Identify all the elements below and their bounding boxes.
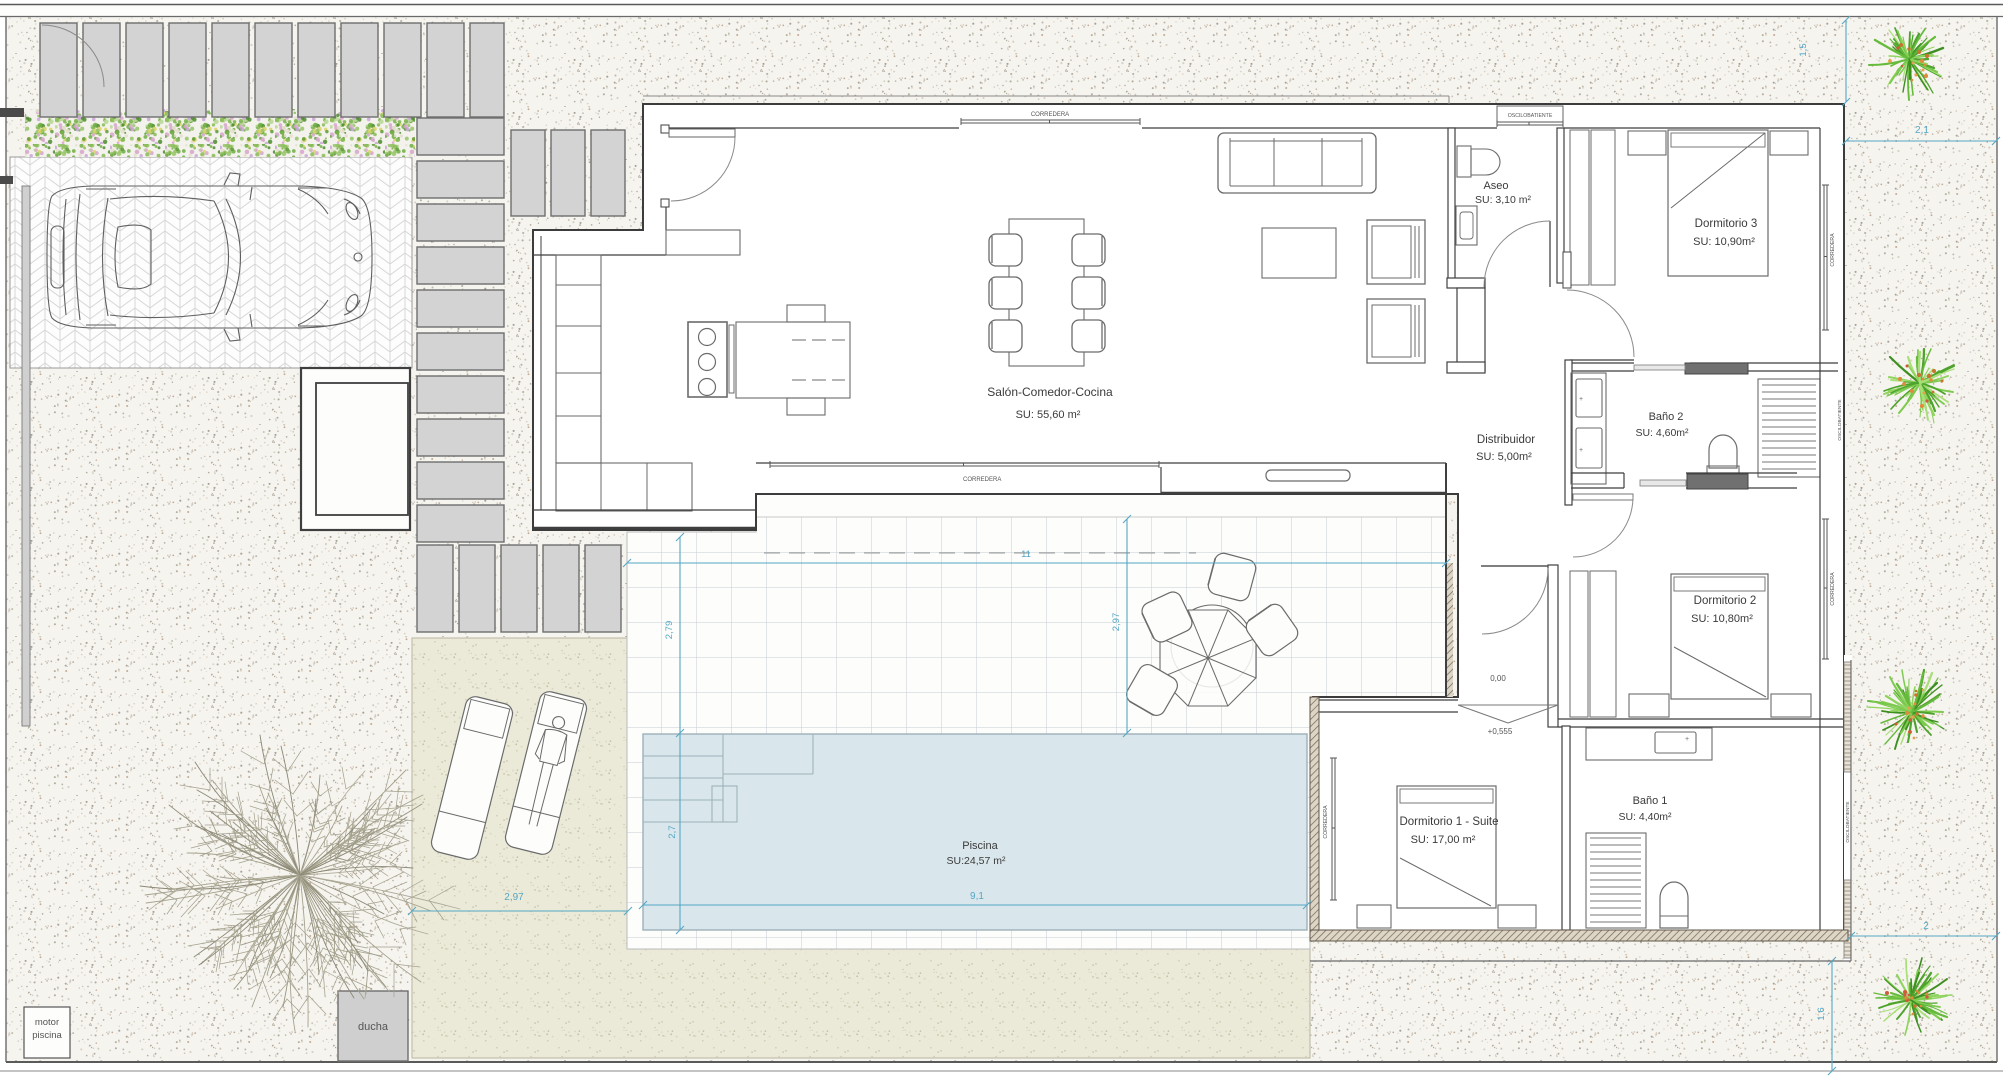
svg-text:Dormitorio 1 - Suite: Dormitorio 1 - Suite bbox=[1399, 816, 1498, 828]
svg-text:SU:24,57 m²: SU:24,57 m² bbox=[947, 855, 1006, 867]
svg-text:SU: 55,60 m²: SU: 55,60 m² bbox=[1016, 409, 1081, 421]
svg-text:SU: 3,10 m²: SU: 3,10 m² bbox=[1475, 194, 1532, 206]
svg-text:+0,555: +0,555 bbox=[1488, 727, 1513, 736]
svg-text:OSCILOBATIENTE: OSCILOBATIENTE bbox=[1508, 113, 1553, 119]
svg-text:CORREDERA: CORREDERA bbox=[963, 477, 1001, 483]
svg-text:SU: 17,00 m²: SU: 17,00 m² bbox=[1411, 834, 1476, 846]
svg-text:CORREDERA: CORREDERA bbox=[1323, 805, 1329, 839]
svg-text:SU: 10,90m²: SU: 10,90m² bbox=[1693, 236, 1755, 248]
svg-text:motor: motor bbox=[35, 1017, 59, 1028]
svg-text:CORREDERA: CORREDERA bbox=[1830, 233, 1836, 267]
svg-text:9,1: 9,1 bbox=[970, 891, 984, 902]
svg-text:+: + bbox=[1579, 447, 1583, 454]
svg-text:SU: 5,00m²: SU: 5,00m² bbox=[1476, 451, 1532, 463]
svg-text:OSCILOBATIENTE: OSCILOBATIENTE bbox=[1845, 801, 1851, 842]
svg-text:Baño 1: Baño 1 bbox=[1633, 795, 1668, 807]
svg-text:SU: 4,40m²: SU: 4,40m² bbox=[1618, 811, 1672, 823]
svg-text:Aseo: Aseo bbox=[1483, 180, 1508, 192]
svg-text:Dormitorio 3: Dormitorio 3 bbox=[1695, 218, 1758, 230]
svg-text:2,97: 2,97 bbox=[1111, 613, 1122, 632]
svg-text:2: 2 bbox=[1923, 921, 1929, 932]
svg-text:+: + bbox=[1685, 736, 1689, 743]
svg-text:1,5: 1,5 bbox=[1798, 43, 1809, 56]
svg-text:0,00: 0,00 bbox=[1490, 674, 1506, 683]
svg-text:OSCILOBATIENTE: OSCILOBATIENTE bbox=[1837, 399, 1843, 440]
svg-text:CORREDERA: CORREDERA bbox=[1830, 572, 1836, 606]
svg-text:Dormitorio 2: Dormitorio 2 bbox=[1694, 595, 1757, 607]
svg-text:ducha: ducha bbox=[358, 1021, 389, 1033]
svg-text:2,97: 2,97 bbox=[504, 892, 524, 903]
svg-text:Salón-Comedor-Cocina: Salón-Comedor-Cocina bbox=[987, 385, 1113, 399]
svg-text:piscina: piscina bbox=[32, 1030, 62, 1041]
svg-text:SU: 10,80m²: SU: 10,80m² bbox=[1691, 613, 1753, 625]
svg-text:CORREDERA: CORREDERA bbox=[1031, 112, 1069, 118]
svg-text:2,1: 2,1 bbox=[1915, 125, 1929, 136]
svg-text:2,79: 2,79 bbox=[664, 621, 675, 640]
svg-text:1,6: 1,6 bbox=[1816, 1007, 1827, 1020]
svg-text:+: + bbox=[1579, 396, 1583, 403]
svg-text:2,7: 2,7 bbox=[667, 825, 678, 838]
svg-text:Piscina: Piscina bbox=[962, 840, 998, 852]
svg-text:SU: 4,60m²: SU: 4,60m² bbox=[1635, 427, 1689, 439]
svg-text:11: 11 bbox=[1021, 549, 1031, 560]
svg-text:Baño 2: Baño 2 bbox=[1649, 411, 1684, 423]
svg-text:Distribuidor: Distribuidor bbox=[1477, 434, 1535, 446]
